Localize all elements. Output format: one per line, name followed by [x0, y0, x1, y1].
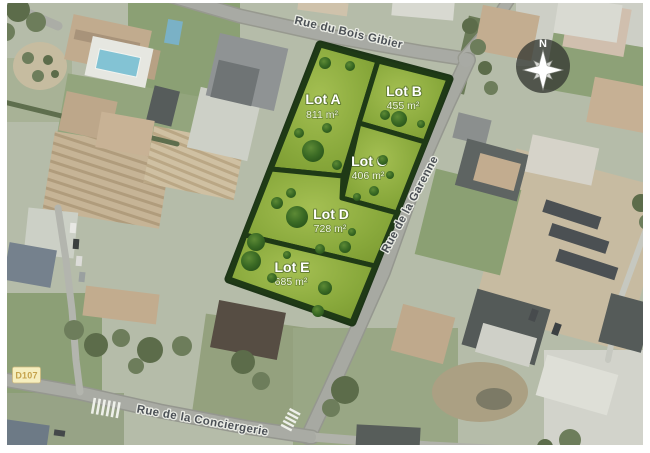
tree-icon [286, 188, 296, 198]
lot-d-label: Lot D [313, 206, 349, 222]
tree-icon [286, 206, 308, 228]
tree-icon [302, 140, 324, 162]
tree-icon [369, 186, 379, 196]
tree-icon [283, 251, 291, 259]
tree-icon [391, 111, 407, 127]
tree-icon [319, 57, 331, 69]
tree-icon [322, 123, 332, 133]
aerial-lot-map: Lot A 811 m² Lot B 455 m² Lot C 406 m² L… [0, 0, 650, 453]
lot-b-label: Lot B [386, 83, 422, 99]
road-badge-label: D107 [15, 371, 37, 381]
road-badge-d107: D107 [13, 367, 41, 383]
tree-icon [348, 228, 356, 236]
tree-icon [417, 120, 425, 128]
tree-icon [241, 251, 261, 271]
tree-icon [380, 110, 390, 120]
tree-icon [339, 241, 351, 253]
tree-icon [267, 273, 277, 283]
tree-icon [271, 197, 283, 209]
lot-b-area: 455 m² [387, 100, 420, 112]
tree-icon [312, 305, 324, 317]
tree-icon [353, 193, 361, 201]
tree-icon [386, 171, 394, 179]
rock-garden [13, 42, 67, 90]
tree-icon [315, 244, 325, 254]
tree-icon [332, 160, 342, 170]
lot-e-label: Lot E [275, 259, 310, 275]
lot-d-area: 728 m² [314, 223, 347, 235]
tree-icon [294, 128, 304, 138]
tree-icon [247, 233, 265, 251]
lot-e-area: 685 m² [275, 276, 308, 288]
lot-c-area: 406 m² [352, 170, 385, 182]
lot-a-label: Lot A [305, 91, 340, 107]
site-plan-svg: Lot A 811 m² Lot B 455 m² Lot C 406 m² L… [0, 0, 650, 453]
tree-icon [378, 155, 388, 165]
tree-icon [318, 281, 332, 295]
lot-a-area: 811 m² [306, 109, 338, 121]
tree-icon [345, 61, 355, 71]
compass-north-label: N [539, 38, 547, 50]
